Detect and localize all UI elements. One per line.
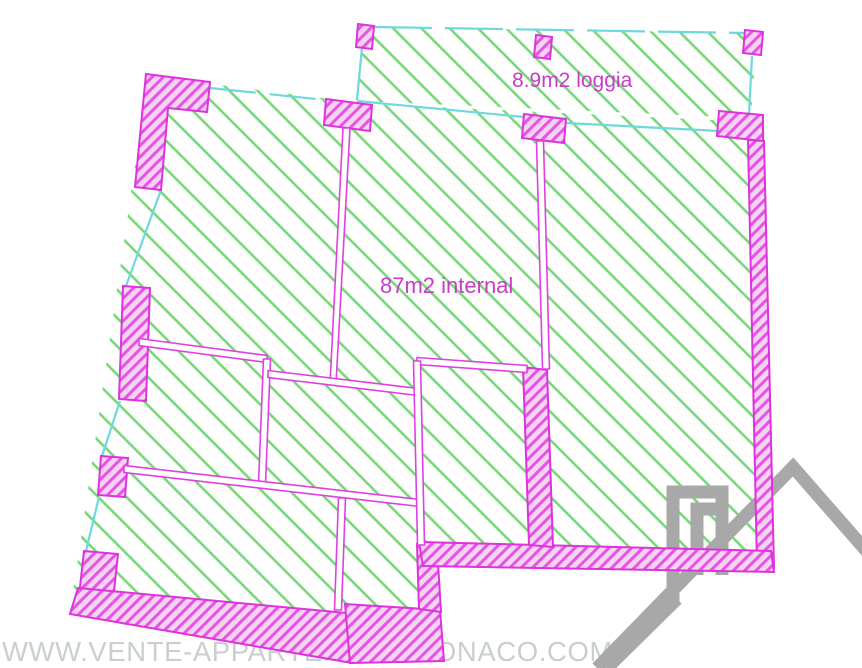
internal-area-label: 87m2 internal	[380, 273, 513, 298]
wall-top-mid-segment	[324, 99, 372, 131]
wall-loggia-bottom-pier	[522, 114, 566, 143]
wall-loggia-pier-mid	[534, 35, 552, 59]
wall-loggia-pier-right	[743, 30, 763, 55]
loggia-area-label: 8.9m2 loggia	[512, 69, 633, 92]
wall-loggia-right-corner	[717, 111, 763, 141]
wall-left-pier-lower	[98, 456, 128, 497]
wall-loggia-pier-left	[356, 24, 374, 49]
wall-shaft-right	[523, 367, 553, 547]
floor-plan-page: WWW.VENTE-APPARTEMENT-MONACO.COM	[0, 0, 862, 668]
floor-plan-canvas: WWW.VENTE-APPARTEMENT-MONACO.COM	[0, 0, 862, 668]
wall-bottom-junction	[345, 604, 444, 663]
